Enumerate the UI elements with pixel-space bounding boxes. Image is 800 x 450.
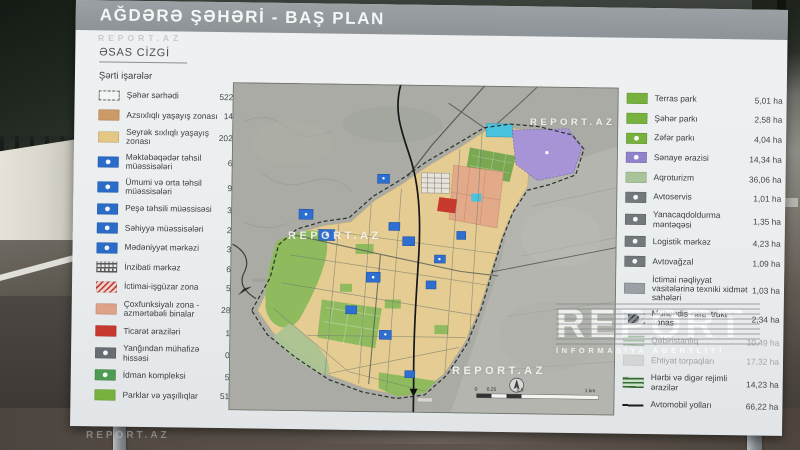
legend-item-label: Ehtiyat torpaqları: [651, 356, 714, 366]
legend-item: Terras park5,01 ha: [627, 92, 783, 108]
legend-swatch: [96, 281, 117, 292]
legend-item: Logistik mərkəz4,23 ha: [625, 235, 781, 251]
legend-item: Qəbiristanlıq10,49 ha: [623, 334, 779, 350]
legend-item-label: Çoxfunksiyalı zona - azmərtəbəli binalar: [124, 300, 221, 320]
legend-item-label: Ümumi və orta təhsil müəssisələri: [125, 177, 222, 197]
legend-item-label: Avtomobil yolları: [650, 400, 711, 410]
legend-swatch: [626, 172, 647, 183]
sign-title: AĞDƏRƏ ŞƏHƏRİ - BAŞ PLAN: [76, 5, 385, 29]
legend-swatch: [623, 377, 644, 388]
legend-swatch: [623, 335, 644, 346]
legend-swatch: [625, 236, 646, 247]
legend-item-value: 10,49 ha: [747, 337, 780, 347]
legend-swatch: [627, 93, 648, 104]
legend-item-label: Parklar və yaşıllıqlar: [122, 390, 198, 400]
legend-item: Avtovağzal1,09 ha: [624, 254, 780, 270]
legend-swatch: [98, 109, 119, 120]
legend-swatch: [622, 399, 643, 410]
legend-item-label: Ticarət əraziləri: [123, 326, 180, 336]
legend-item-label: Seyrək sıxlıqlı yaşayış zonası: [126, 128, 219, 148]
legend-swatch: [96, 242, 117, 253]
legend-symbol-icon: [106, 159, 111, 164]
legend-symbol-icon: [105, 206, 110, 211]
legend-item-value: 1,09 ha: [752, 258, 780, 268]
legend-item-label: Avtoservis: [653, 193, 692, 203]
legend-item-label: Yanacaqdoldurma məntəqəsi: [653, 210, 753, 230]
legend-right-column: Terras park5,01 haŞəhər parkı2,58 haZəfə…: [622, 92, 783, 420]
legend-item-label: Avtovağzal: [652, 257, 693, 267]
legend-swatch: [96, 303, 117, 314]
legend-item-value: 1,35 ha: [753, 216, 781, 226]
legend-item-label: İnzibati mərkəz: [124, 263, 180, 273]
svg-text:0: 0: [475, 387, 478, 393]
legend-item-label: Sənaye ərazisi: [654, 153, 709, 163]
legend-item-label: Hərbi və digər rejimli ərazilər: [651, 373, 747, 393]
legend-swatch: [98, 156, 119, 167]
legend-item-label: Mühəndis infrastruktur zonası: [651, 309, 751, 329]
master-plan-sign: AĞDƏRƏ ŞƏHƏRİ - BAŞ PLAN ƏSAS CİZGİ Şərt…: [70, 0, 788, 436]
legend-right-rows: Terras park5,01 haŞəhər parkı2,58 haZəfə…: [622, 92, 782, 414]
legend-item: Yanacaqdoldurma məntəqəsi1,35 ha: [625, 210, 781, 231]
legend-item-label: Məktəbəqədər təhsil müəssisələri: [126, 153, 223, 173]
legend-swatch: [99, 90, 120, 100]
sign-subtitle: ƏSAS CİZGİ: [99, 46, 187, 63]
legend-item-label: Zəfər parkı: [654, 134, 695, 144]
legend-swatch: [97, 181, 118, 192]
legend-item-label: Qəbiristanlıq: [651, 336, 698, 346]
legend-swatch: [95, 325, 116, 336]
legend-symbol-icon: [633, 239, 638, 244]
legend-item-value: 17,32 ha: [746, 357, 779, 367]
master-plan-map: 0 0,25 0,5 1 km: [228, 82, 619, 415]
legend-item-value: 14,23 ha: [746, 379, 779, 389]
legend-item-label: Yanğından mühafizə hissəsi: [123, 344, 220, 364]
legend-item: Mühəndis infrastruktur zonası2,34 ha: [623, 309, 779, 330]
legend-symbol-icon: [632, 259, 637, 264]
legend-swatch: [97, 203, 118, 214]
legend-item-value: 5,01 ha: [755, 95, 783, 105]
legend-item-label: Şəhər sərhədi: [127, 91, 179, 101]
legend-swatch: [96, 261, 117, 272]
legend-swatch: [625, 191, 646, 202]
legend-swatch: [626, 113, 647, 124]
legend-item-value: 4,04 ha: [754, 135, 782, 145]
legend-item-label: İctimai-işgüzar zona: [124, 282, 199, 292]
legend-swatch: [94, 389, 115, 400]
legend-item: Sənaye ərazisi14,34 ha: [626, 151, 782, 167]
legend-swatch: [95, 370, 116, 381]
legend-item-value: 66,22 ha: [746, 401, 779, 411]
legend-swatch: [95, 347, 116, 358]
legend-swatch: [625, 214, 646, 225]
legend-item-value: 1,01 ha: [753, 194, 781, 204]
legend-swatch: [626, 152, 647, 163]
legend-item-value: 2,34 ha: [752, 315, 780, 325]
legend-swatch: [626, 132, 647, 143]
svg-text:1 km: 1 km: [585, 388, 596, 394]
legend-item-value: 1,03 ha: [752, 285, 780, 295]
svg-text:0,5: 0,5: [517, 387, 524, 393]
legend-item: Şəhər parkı2,58 ha: [626, 111, 782, 127]
legend-symbol-icon: [103, 373, 108, 378]
legend-swatch: [624, 312, 645, 323]
legend-symbol-icon: [105, 226, 110, 231]
legend-item-value: 4,23 ha: [753, 238, 781, 248]
legend-item: İctimai nəqliyyat vasitələrinə texniki x…: [624, 274, 780, 304]
legend-swatch: [623, 355, 644, 366]
legend-item: Avtoservis1,01 ha: [625, 190, 781, 206]
legend-item: Aqroturizm36,06 ha: [625, 170, 781, 186]
legend-symbol-icon: [633, 217, 638, 222]
legend-item-value: 2,58 ha: [754, 115, 782, 125]
legend-item-label: Səhiyyə müəssisələri: [125, 224, 204, 235]
legend-item-label: Aqroturizm: [654, 173, 695, 183]
legend-swatch: [97, 223, 118, 234]
legend-item: Hərbi və digər rejimli ərazilər14,23 ha: [623, 373, 779, 394]
legend-symbol-icon: [634, 135, 639, 140]
legend-item-label: Azsıxlıqlı yaşayış zonası: [126, 110, 217, 121]
svg-text:0,25: 0,25: [487, 387, 497, 393]
legend-item-label: Logistik mərkəz: [653, 237, 711, 247]
legend-symbol-icon: [105, 184, 110, 189]
legend-item-label: Şəhər parkı: [654, 114, 697, 124]
legend-item-value: 36,06 ha: [749, 174, 782, 184]
legend-item-value: 14,34 ha: [749, 154, 782, 164]
legend-swatch: [624, 256, 645, 267]
legend-item: Zəfər parkı4,04 ha: [626, 131, 782, 147]
legend-item-label: Terras park: [655, 94, 697, 104]
legend-item-label: Peşə təhsili müəssisəsi: [125, 204, 212, 215]
legend-swatch: [98, 131, 119, 142]
legend-symbol-icon: [634, 155, 639, 160]
legend-swatch: [624, 283, 645, 294]
legend-item: Avtomobil yolları66,22 ha: [622, 398, 778, 414]
legend-item: Ehtiyat torpaqları17,32 ha: [623, 353, 779, 369]
legend-item-label: Mədəniyyət mərkəzi: [124, 243, 199, 253]
legend-symbol-icon: [105, 245, 110, 250]
legend-item-label: İctimai nəqliyyat vasitələrinə texniki x…: [652, 275, 752, 305]
photo-of-master-plan-billboard: AĞDƏRƏ ŞƏHƏRİ - BAŞ PLAN ƏSAS CİZGİ Şərt…: [0, 0, 800, 450]
legend-item-label: İdman kompleksi: [123, 371, 186, 381]
legend-symbol-icon: [103, 351, 108, 356]
legend-symbol-icon: [633, 194, 638, 199]
